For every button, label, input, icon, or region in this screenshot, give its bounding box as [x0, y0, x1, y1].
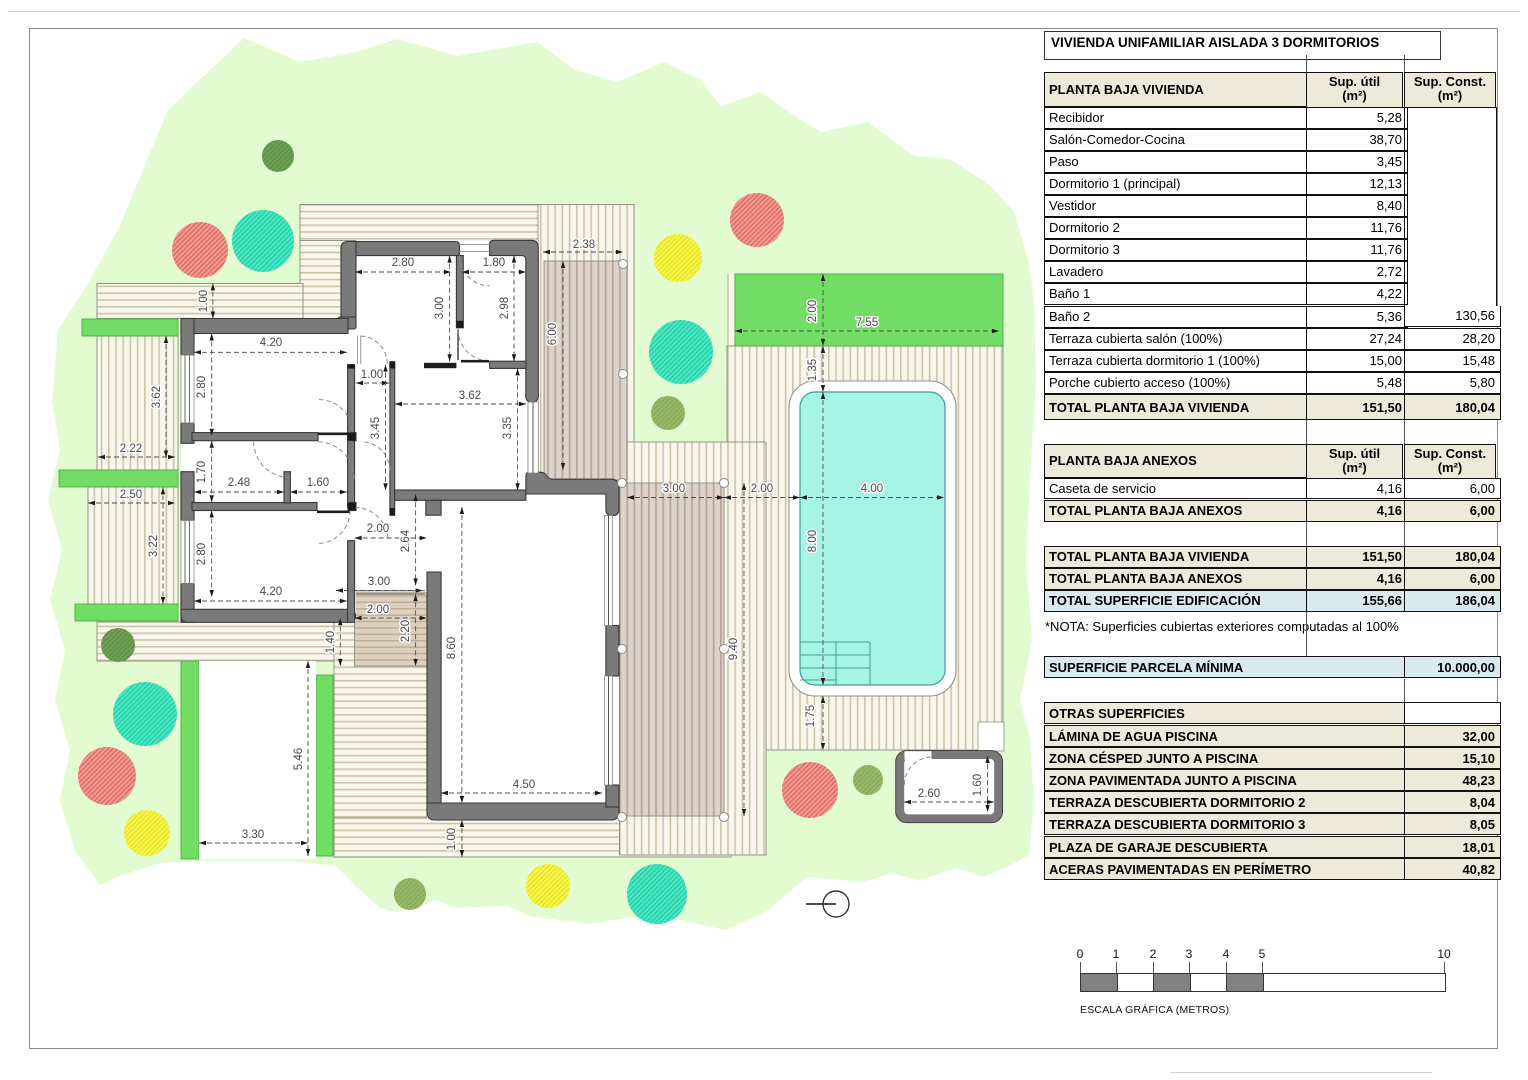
svg-text:2.20: 2.20 [400, 620, 412, 642]
svg-text:2.00: 2.00 [367, 523, 389, 535]
svg-text:2.50: 2.50 [120, 489, 142, 501]
svg-text:4.20: 4.20 [260, 337, 282, 349]
svg-text:4.50: 4.50 [513, 779, 535, 791]
svg-text:2.00: 2.00 [807, 300, 819, 322]
svg-text:4.00: 4.00 [861, 483, 883, 495]
svg-text:7.55: 7.55 [856, 317, 878, 329]
svg-text:2.64: 2.64 [400, 529, 412, 552]
svg-text:1.80: 1.80 [483, 257, 505, 269]
svg-text:4.20: 4.20 [260, 586, 282, 598]
svg-text:1.00: 1.00 [361, 369, 383, 381]
svg-text:2.22: 2.22 [120, 443, 142, 455]
svg-text:3.00: 3.00 [368, 576, 390, 588]
svg-text:2.38: 2.38 [573, 239, 595, 251]
svg-text:8.60: 8.60 [446, 637, 458, 659]
svg-text:1.70: 1.70 [196, 461, 208, 483]
svg-text:2.00: 2.00 [751, 483, 773, 495]
svg-text:2.00: 2.00 [367, 604, 389, 616]
svg-text:1.60: 1.60 [307, 477, 329, 489]
svg-text:3.22: 3.22 [148, 535, 160, 557]
svg-text:1.60: 1.60 [972, 774, 984, 796]
svg-text:1.00: 1.00 [446, 828, 458, 850]
svg-text:6.00: 6.00 [547, 323, 559, 345]
svg-text:2.98: 2.98 [499, 297, 511, 319]
svg-text:2.80: 2.80 [392, 257, 414, 269]
svg-text:3.35: 3.35 [502, 417, 514, 439]
svg-text:9.40: 9.40 [728, 638, 740, 660]
svg-text:3.00: 3.00 [434, 297, 446, 319]
svg-text:3.62: 3.62 [151, 386, 163, 408]
svg-text:1.75: 1.75 [805, 705, 817, 727]
svg-text:1.35: 1.35 [807, 359, 819, 381]
svg-text:8.00: 8.00 [807, 530, 819, 552]
svg-text:1.00: 1.00 [198, 290, 210, 312]
svg-text:2.80: 2.80 [196, 543, 208, 565]
svg-text:2.80: 2.80 [196, 376, 208, 398]
svg-text:2.48: 2.48 [228, 477, 250, 489]
svg-text:3.62: 3.62 [459, 390, 481, 402]
svg-text:3.00: 3.00 [663, 483, 685, 495]
svg-text:3.30: 3.30 [242, 829, 264, 841]
svg-text:2.60: 2.60 [918, 788, 940, 800]
svg-text:1.40: 1.40 [325, 631, 337, 653]
svg-text:5.46: 5.46 [293, 748, 305, 770]
svg-text:3.45: 3.45 [370, 417, 382, 439]
